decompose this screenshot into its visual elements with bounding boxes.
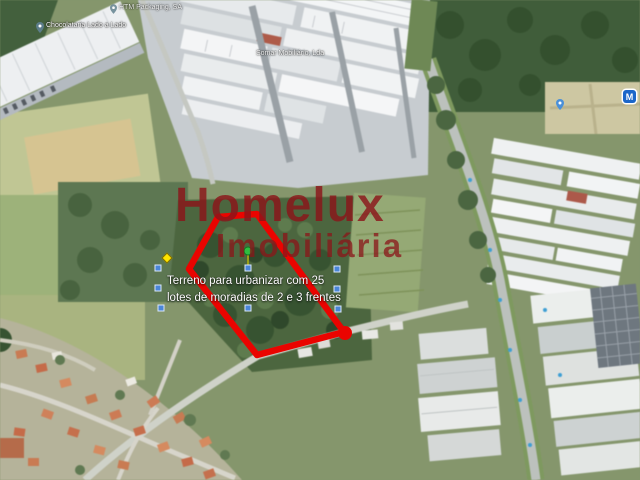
aerial-photo xyxy=(0,0,640,480)
listing-caption: Terreno para urbanizar com 25 lotes de m… xyxy=(167,273,341,306)
aerial-screenshot: Homelux Imobiliária Terreno para urbaniz… xyxy=(0,0,640,480)
place-pin-icon xyxy=(36,22,44,33)
park-pin-icon[interactable] xyxy=(556,99,564,110)
place-label-somar[interactable]: Somar Mobiliário, Lda xyxy=(256,50,324,57)
place-pin-icon xyxy=(110,4,117,14)
place-label-text: Somar Mobiliário, Lda xyxy=(256,50,324,57)
caption-line1: Terreno para urbanizar com 25 xyxy=(167,273,341,290)
place-label-text: HTM Packaging, SA xyxy=(119,4,182,11)
caption-line2: lotes de moradias de 2 e 3 frentes xyxy=(167,290,341,307)
place-label-text: Chocolataria Lado a Lado xyxy=(46,22,126,29)
place-label-chocolataria[interactable]: Chocolataria Lado a Lado xyxy=(36,22,126,33)
place-label-htm[interactable]: HTM Packaging, SA xyxy=(110,4,182,14)
metro-station-icon[interactable]: M xyxy=(623,90,636,103)
